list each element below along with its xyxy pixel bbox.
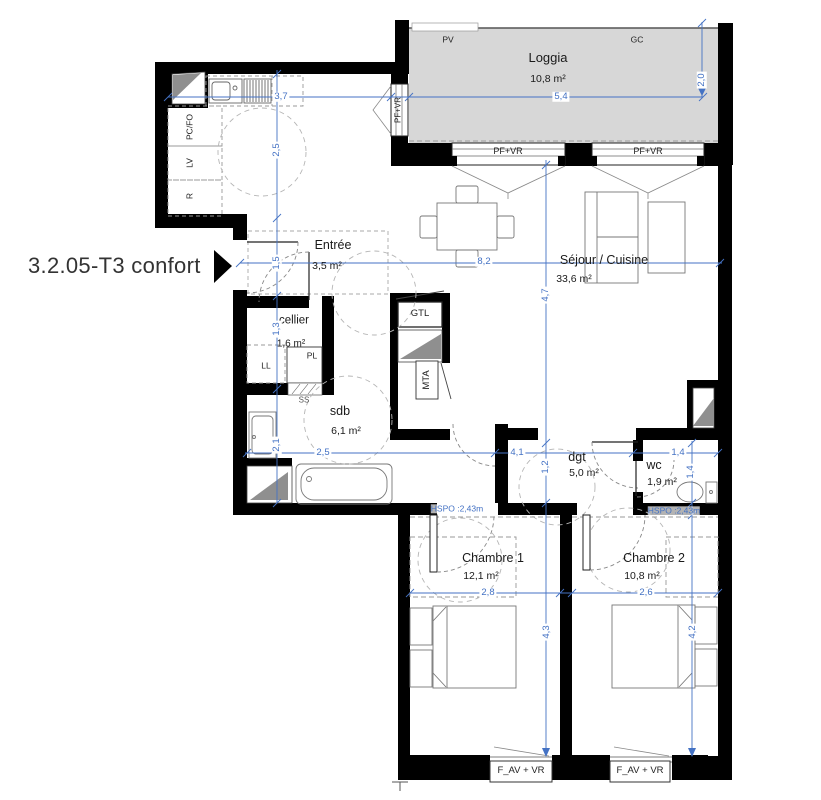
room-area-entree: 3,5 m²	[312, 261, 342, 273]
label-ss: SS	[299, 397, 310, 406]
bed-chambre2	[612, 605, 695, 688]
dim-kitchen-width: 3,7	[272, 92, 289, 102]
appliance-lv-box	[168, 146, 222, 180]
label-mta: MTA	[422, 370, 432, 389]
label-gtl: GTL	[411, 309, 429, 319]
hspo-label-chambre2: HSPO :2,43m	[648, 506, 700, 515]
wardrobe-chambre1	[410, 537, 516, 597]
appliance-r-box	[168, 180, 222, 216]
dim-sejour-depth: 4,7	[541, 286, 551, 303]
dim-loggia-width: 5,4	[552, 92, 569, 102]
sdb-door-arc	[453, 424, 495, 466]
window-label-favr-2: F_AV + VR	[616, 766, 663, 776]
room-area-chambre1: 12,1 m²	[463, 571, 499, 583]
label-pcfo: PC/FO	[185, 114, 194, 140]
room-area-sejour: 33,6 m²	[556, 274, 592, 286]
dim-sdb-width: 2,5	[314, 448, 331, 458]
dim-kitchen-depth: 2,5	[272, 141, 282, 158]
dim-chambre2-width: 2,6	[637, 588, 654, 598]
window-label-pfvr-vertical: PF+VR	[395, 97, 404, 123]
side-table	[648, 202, 685, 273]
label-lv: LV	[185, 158, 194, 168]
label-r: R	[185, 193, 194, 199]
label-pl: PL	[307, 351, 317, 360]
room-name-loggia: Loggia	[528, 51, 567, 65]
hspo-label-chambre1: HSPO :2,43m	[431, 504, 483, 513]
room-name-chambre1: Chambre 1	[462, 552, 524, 566]
chambre2-door-leaf	[583, 515, 590, 570]
room-name-dgt: dgt	[568, 451, 585, 465]
room-area-sdb: 6,1 m²	[331, 426, 361, 438]
window-label-pfvr-1: PF+VR	[493, 147, 522, 157]
dim-chambre1-width: 2,8	[479, 588, 496, 598]
bed-chambre1	[433, 606, 516, 688]
nightstand	[695, 607, 717, 644]
nightstand	[410, 650, 432, 687]
room-name-wc: wc	[646, 459, 661, 473]
room-name-sejour: Séjour / Cuisine	[560, 254, 648, 268]
label-gc: GC	[631, 35, 644, 44]
chambre1-door-leaf	[430, 515, 437, 572]
room-area-dgt: 5,0 m²	[569, 468, 599, 480]
room-area-wc: 1,9 m²	[647, 477, 677, 489]
bathtub	[296, 464, 392, 504]
dim-sdb-depth: 2,1	[272, 436, 282, 453]
label-ll: LL	[261, 361, 270, 370]
room-name-cellier: cellier	[279, 315, 309, 328]
toilet	[706, 482, 717, 503]
dim-entree-depth: 1,5	[272, 254, 282, 271]
floor-plan: 3.2.05-T3 confort Loggia 10,8 m² PV GC E…	[0, 0, 821, 800]
nightstand	[695, 649, 717, 686]
guide-dashes	[218, 108, 718, 602]
doors	[247, 242, 674, 572]
plan-title: 3.2.05-T3 confort	[28, 254, 201, 278]
room-area-loggia: 10,8 m²	[530, 74, 566, 86]
room-area-chambre2: 10,8 m²	[624, 571, 660, 583]
appliance-pcfo-box	[168, 106, 222, 146]
dim-chambre2-depth: 4,2	[688, 623, 698, 640]
dim-dgt-depth: 1,2	[541, 458, 551, 475]
floor-plan-drawing	[0, 0, 821, 800]
room-name-sdb: sdb	[330, 405, 350, 419]
dim-wc-depth: 1,4	[686, 463, 696, 480]
room-area-cellier: 1,6 m²	[277, 339, 305, 350]
dining-table	[437, 203, 497, 250]
label-pv: PV	[442, 35, 453, 44]
sofa	[585, 192, 638, 283]
room-name-chambre2: Chambre 2	[623, 552, 685, 566]
nightstand	[410, 608, 432, 645]
sink-drainer	[244, 79, 271, 103]
dim-cellier-depth: 1,3	[272, 320, 282, 337]
dim-wc-width: 1,4	[669, 448, 686, 458]
dim-chambre1-depth: 4,3	[542, 623, 552, 640]
dim-total-width: 8,2	[475, 257, 492, 267]
dim-loggia-depth: 2,0	[697, 71, 707, 88]
window-label-pfvr-2: PF+VR	[633, 147, 662, 157]
window-label-favr-1: F_AV + VR	[497, 766, 544, 776]
room-name-entree: Entrée	[315, 239, 352, 253]
dim-dgt-width: 4,1	[508, 448, 525, 458]
